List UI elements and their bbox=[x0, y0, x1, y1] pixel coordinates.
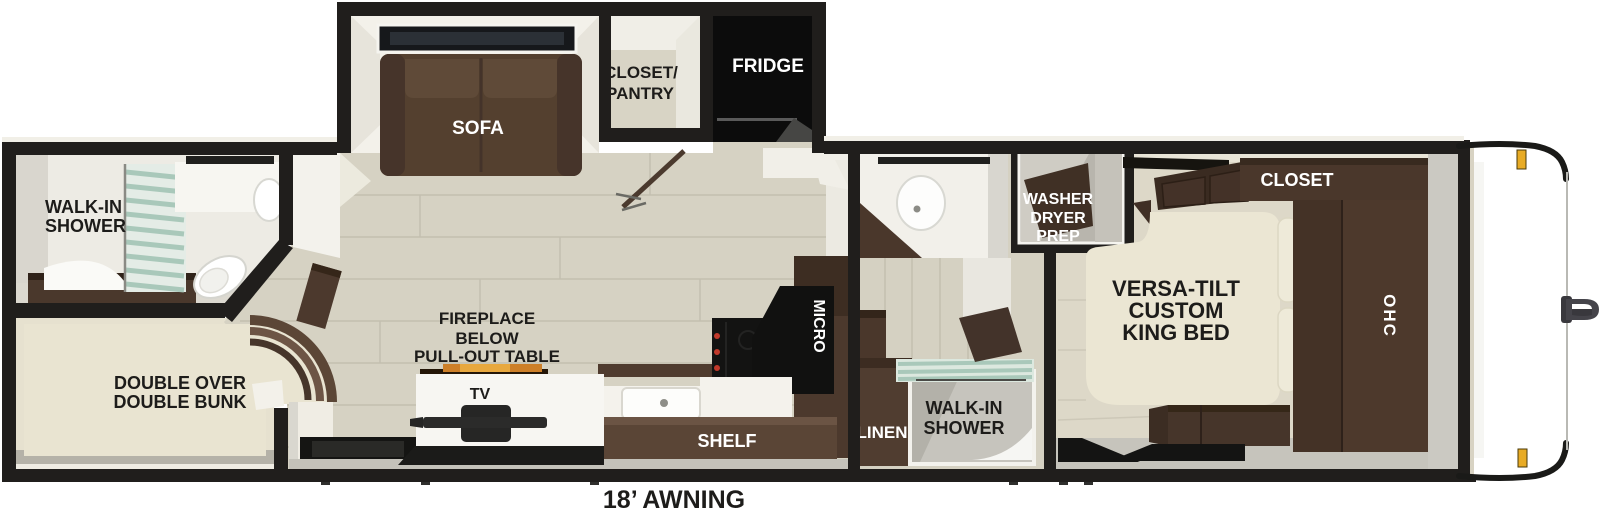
svg-text:WASHER: WASHER bbox=[1023, 191, 1094, 208]
svg-text:FRIDGE: FRIDGE bbox=[732, 56, 804, 77]
svg-text:FIREPLACE: FIREPLACE bbox=[439, 309, 535, 328]
svg-text:18’ AWNING: 18’ AWNING bbox=[603, 486, 745, 508]
svg-text:DOUBLE OVER: DOUBLE OVER bbox=[114, 373, 246, 393]
svg-text:DOUBLE BUNK: DOUBLE BUNK bbox=[114, 392, 247, 412]
svg-text:LINEN: LINEN bbox=[857, 423, 908, 442]
svg-text:DRYER: DRYER bbox=[1030, 210, 1086, 227]
svg-text:PULL-OUT TABLE: PULL-OUT TABLE bbox=[414, 347, 560, 366]
svg-text:WALK-IN: WALK-IN bbox=[926, 398, 1003, 418]
svg-text:CLOSET/: CLOSET/ bbox=[604, 63, 678, 82]
svg-text:OHC: OHC bbox=[1380, 294, 1399, 338]
svg-text:PREP: PREP bbox=[1036, 228, 1080, 245]
svg-text:SOFA: SOFA bbox=[452, 118, 504, 139]
svg-text:SHELF: SHELF bbox=[697, 431, 756, 451]
svg-text:KING BED: KING BED bbox=[1122, 320, 1230, 345]
svg-text:CLOSET: CLOSET bbox=[1260, 170, 1333, 190]
svg-text:WALK-IN: WALK-IN bbox=[45, 197, 122, 217]
svg-text:TV: TV bbox=[470, 386, 491, 403]
svg-text:BELOW: BELOW bbox=[455, 329, 519, 348]
svg-text:SHOWER: SHOWER bbox=[45, 216, 126, 236]
svg-text:PANTRY: PANTRY bbox=[606, 84, 675, 103]
svg-text:SHOWER: SHOWER bbox=[924, 418, 1005, 438]
svg-text:MICRO: MICRO bbox=[810, 299, 827, 352]
